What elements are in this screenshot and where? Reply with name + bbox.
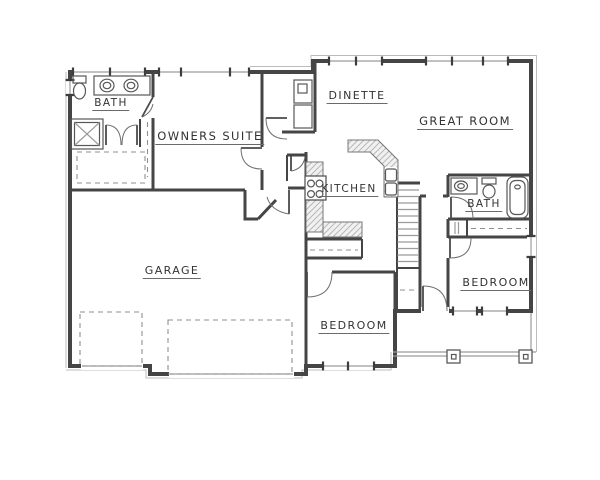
porch-column [519,350,532,363]
floor-plan-drawing [0,0,600,480]
window [452,307,478,316]
porch-door-opening [421,307,449,315]
garage-door-openings [81,362,294,378]
room-label-bedroom-2: BEDROOM [460,271,531,291]
porch-column [447,350,460,363]
shower-fixture [71,119,103,149]
room-label-great-room: GREAT ROOM [417,110,513,130]
kitchen-sink-fixture [385,167,397,196]
window [328,57,383,66]
bedroom2-door [450,238,471,258]
entry-cabinet-fixture [294,80,312,128]
window [158,68,250,77]
wic-double-doors [106,125,137,145]
room-label-bedroom-1: BEDROOM [318,314,389,334]
room-label-bath-1: BATH [92,91,129,111]
room-label-dinette: DINETTE [327,84,388,104]
bath1-door [142,97,153,117]
window [425,57,509,66]
porch [393,313,536,363]
interior-walls [70,61,531,374]
room-label-kitchen: KITCHEN [319,177,378,197]
window [72,68,146,77]
toilet-fixture [73,76,86,99]
floor-plan: BATH OWNERS SUITE DINETTE GREAT ROOM KIT… [0,0,600,480]
entry-closet-door [266,118,287,139]
garage-entry-door [267,190,289,214]
stairs [398,190,420,262]
window [322,362,375,371]
roof-eave-outline [66,56,537,379]
window [527,235,536,258]
bathtub-fixture [507,177,528,218]
room-label-owners-suite: OWNERS SUITE [155,125,264,145]
room-label-garage: GARAGE [143,259,201,279]
mud-closet-door [291,156,305,171]
room-label-bath-2: BATH [465,192,502,212]
window [481,307,508,316]
owners-suite-door [241,148,262,169]
bedroom1-door [307,272,332,297]
